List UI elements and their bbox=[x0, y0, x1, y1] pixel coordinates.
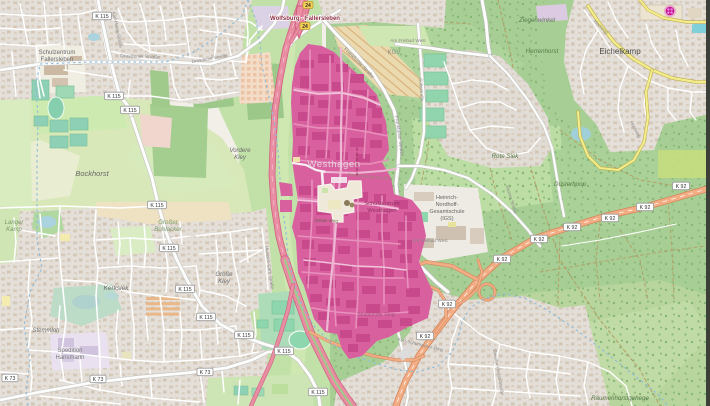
svg-text:Rote Siek: Rote Siek bbox=[492, 153, 520, 160]
svg-text:Westhagen: Westhagen bbox=[307, 159, 360, 170]
svg-text:Fallersleben: Fallersleben bbox=[41, 57, 74, 63]
svg-text:K 92: K 92 bbox=[497, 257, 508, 263]
svg-text:Hansmann: Hansmann bbox=[55, 355, 84, 361]
svg-text:Bockhorst: Bockhorst bbox=[75, 169, 109, 178]
svg-text:Herrenhorst: Herrenhorst bbox=[526, 48, 559, 55]
svg-text:Kerksiek: Kerksiek bbox=[104, 285, 130, 292]
svg-text:Schulzentrum: Schulzentrum bbox=[364, 201, 400, 207]
svg-text:K 92: K 92 bbox=[534, 237, 545, 243]
svg-text:Westhagen: Westhagen bbox=[367, 208, 396, 214]
svg-text:K 92: K 92 bbox=[442, 302, 453, 308]
svg-text:Bohlacker: Bohlacker bbox=[154, 226, 182, 233]
svg-text:(IGS): (IGS) bbox=[440, 216, 453, 222]
svg-text:Vordere: Vordere bbox=[229, 148, 251, 154]
svg-text:K 73: K 73 bbox=[5, 376, 16, 382]
svg-text:K 115: K 115 bbox=[237, 333, 250, 339]
svg-text:K 115: K 115 bbox=[123, 108, 136, 114]
svg-text:K 73: K 73 bbox=[93, 377, 104, 383]
svg-text:Stemmloh: Stemmloh bbox=[32, 328, 60, 334]
svg-text:Räumenhorstgehege: Räumenhorstgehege bbox=[591, 395, 649, 402]
svg-text:Schulzentrum: Schulzentrum bbox=[39, 50, 76, 56]
svg-text:K 115: K 115 bbox=[107, 94, 120, 100]
svg-text:Nordhoff-: Nordhoff- bbox=[436, 202, 459, 208]
svg-text:Großer: Großer bbox=[158, 219, 179, 226]
svg-text:K 115: K 115 bbox=[178, 287, 191, 293]
svg-text:Spedition: Spedition bbox=[57, 348, 82, 354]
svg-text:K 92: K 92 bbox=[640, 205, 651, 211]
svg-text:K 115: K 115 bbox=[150, 203, 163, 209]
svg-text:Kley: Kley bbox=[234, 155, 247, 161]
svg-text:K 92: K 92 bbox=[567, 225, 578, 231]
svg-text:24: 24 bbox=[302, 24, 308, 30]
svg-text:24: 24 bbox=[305, 3, 311, 9]
svg-text:K 115: K 115 bbox=[311, 390, 324, 396]
svg-text:K 115: K 115 bbox=[95, 14, 108, 20]
svg-text:K 115: K 115 bbox=[162, 246, 175, 252]
svg-text:K 92: K 92 bbox=[605, 216, 616, 222]
svg-text:Düsterhoop: Düsterhoop bbox=[554, 181, 587, 188]
svg-text:Heinrich-: Heinrich- bbox=[436, 195, 458, 201]
svg-text:K 73: K 73 bbox=[200, 370, 211, 376]
svg-text:Am Freibad West: Am Freibad West bbox=[412, 238, 448, 243]
svg-text:K 115: K 115 bbox=[277, 349, 290, 355]
svg-text:KGV: KGV bbox=[388, 50, 401, 56]
svg-text:Große: Große bbox=[215, 272, 233, 278]
svg-text:Langer: Langer bbox=[5, 220, 25, 226]
svg-text:Eichelkamp: Eichelkamp bbox=[599, 47, 641, 56]
svg-text:Ziegenwinkel: Ziegenwinkel bbox=[518, 17, 556, 24]
svg-text:Am Freibad West: Am Freibad West bbox=[390, 38, 426, 43]
svg-text:Stralsunder Ring: Stralsunder Ring bbox=[357, 312, 394, 318]
svg-text:K 92: K 92 bbox=[420, 334, 431, 340]
svg-text:Gesamtschule: Gesamtschule bbox=[429, 209, 464, 215]
svg-text:Kamp: Kamp bbox=[6, 227, 22, 233]
svg-text:Kley: Kley bbox=[218, 279, 231, 285]
svg-text:Jenaer Weg: Jenaer Weg bbox=[314, 218, 338, 224]
svg-text:K 92: K 92 bbox=[676, 184, 687, 190]
svg-text:Wolfsburg - Fallersleben: Wolfsburg - Fallersleben bbox=[270, 16, 340, 22]
svg-text:K 115: K 115 bbox=[199, 315, 212, 321]
